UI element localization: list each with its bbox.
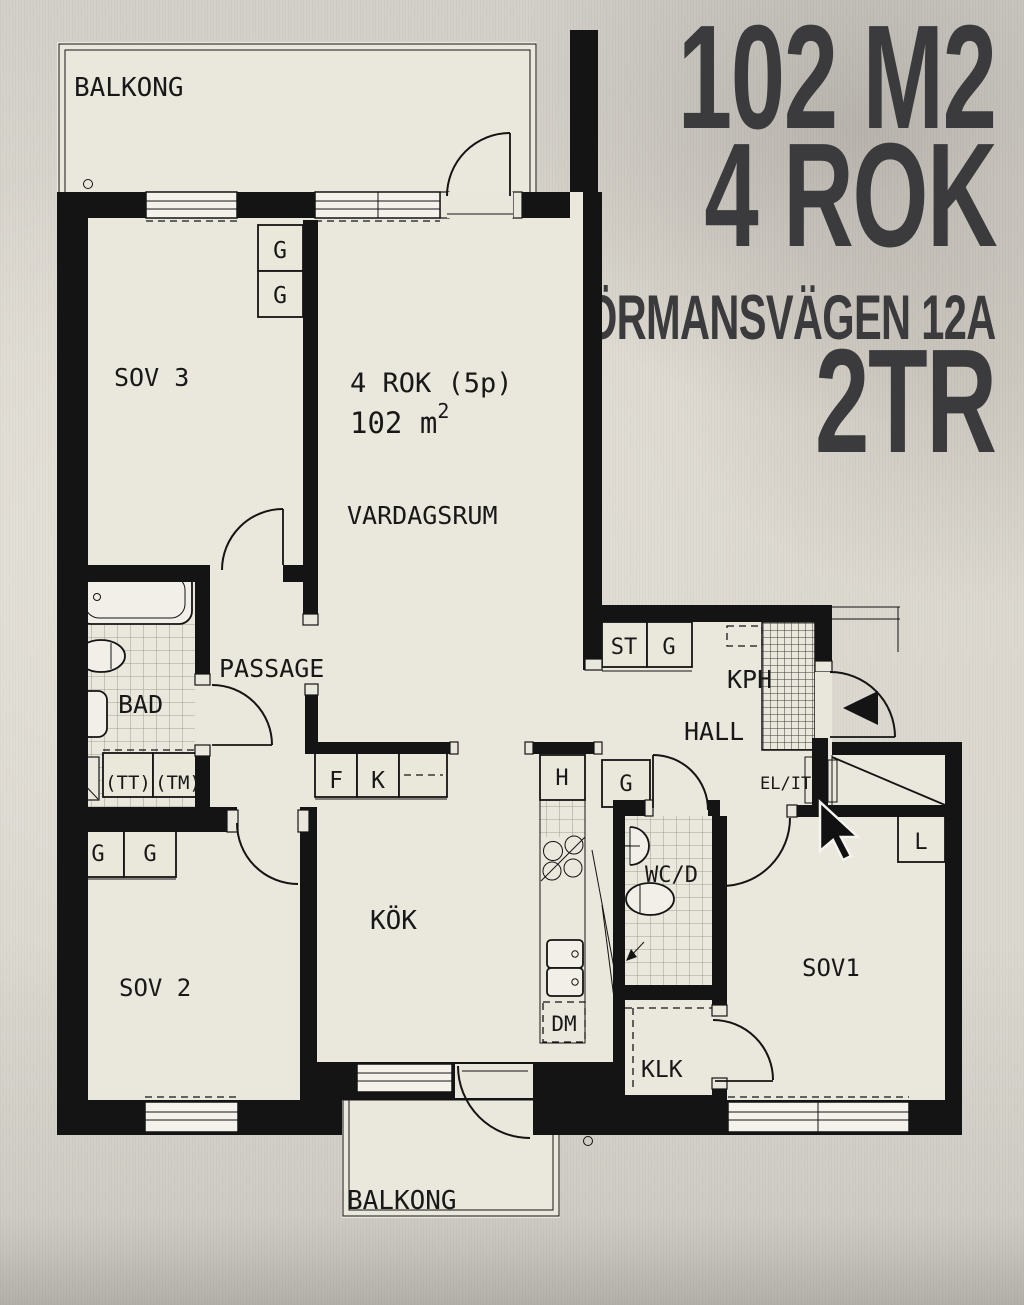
label-kok: KÖK <box>370 904 417 936</box>
apartment-floor-sov1 <box>832 742 962 1135</box>
label-g: G <box>273 283 287 309</box>
label-balkong-top: BALKONG <box>74 73 184 103</box>
label-h: H <box>555 766 568 791</box>
label-hall: HALL <box>684 717 744 746</box>
kitchen-counter-tiles <box>540 800 585 837</box>
label-sov3: SOV 3 <box>114 363 189 392</box>
window-sov3 <box>146 192 237 221</box>
label-bad: BAD <box>118 690 163 719</box>
label-g: G <box>662 635 675 660</box>
label-g: G <box>619 772 632 797</box>
label-area-info: 102 m2 <box>350 399 449 440</box>
door-entry <box>830 672 895 737</box>
label-klk: KLK <box>641 1057 683 1083</box>
balcony-top-floor <box>57 42 537 196</box>
label-area-sup: 2 <box>437 399 449 423</box>
entrance-arrow-icon <box>843 691 878 725</box>
screen-photo: 102 M2 4 ROK FÖRMANSVÄGEN 12A 2TR <box>0 0 1024 1305</box>
window-sov2 <box>145 1097 238 1132</box>
label-balkong-bottom: BALKONG <box>347 1186 457 1216</box>
label-sov2: SOV 2 <box>119 974 191 1002</box>
label-el-it: EL/IT <box>760 774 811 794</box>
label-rok-info: 4 ROK (5p) <box>350 368 513 399</box>
window-sov1 <box>728 1097 909 1132</box>
label-k: K <box>371 768 385 794</box>
label-dm: DM <box>551 1012 576 1036</box>
drain-icon <box>584 1137 593 1146</box>
kitchen-sink-basin <box>547 968 583 996</box>
label-f: F <box>329 768 343 794</box>
label-tm: (TM) <box>155 772 201 794</box>
label-g: G <box>273 238 287 264</box>
label-kph: KPH <box>727 665 772 694</box>
label-g: G <box>143 842 156 867</box>
floor-plan: BALKONG SOV 3 4 ROK (5p) 102 m2 VARDAGSR… <box>0 0 1024 1305</box>
kitchen-sink-basin <box>547 940 583 968</box>
label-area-value: 102 m <box>350 406 437 440</box>
label-sov1: SOV1 <box>802 954 860 982</box>
label-l: L <box>914 830 927 855</box>
label-vardagsrum: VARDAGSRUM <box>347 501 498 530</box>
label-wcd: WC/D <box>645 863 698 888</box>
entry-frame-lines <box>832 607 900 652</box>
window-vardagsrum <box>315 192 440 221</box>
label-passage: PASSAGE <box>219 654 324 683</box>
label-g: G <box>91 842 104 867</box>
window-kitchen <box>357 1064 452 1092</box>
label-tt: (TT) <box>105 772 151 794</box>
label-st: ST <box>611 635 638 660</box>
